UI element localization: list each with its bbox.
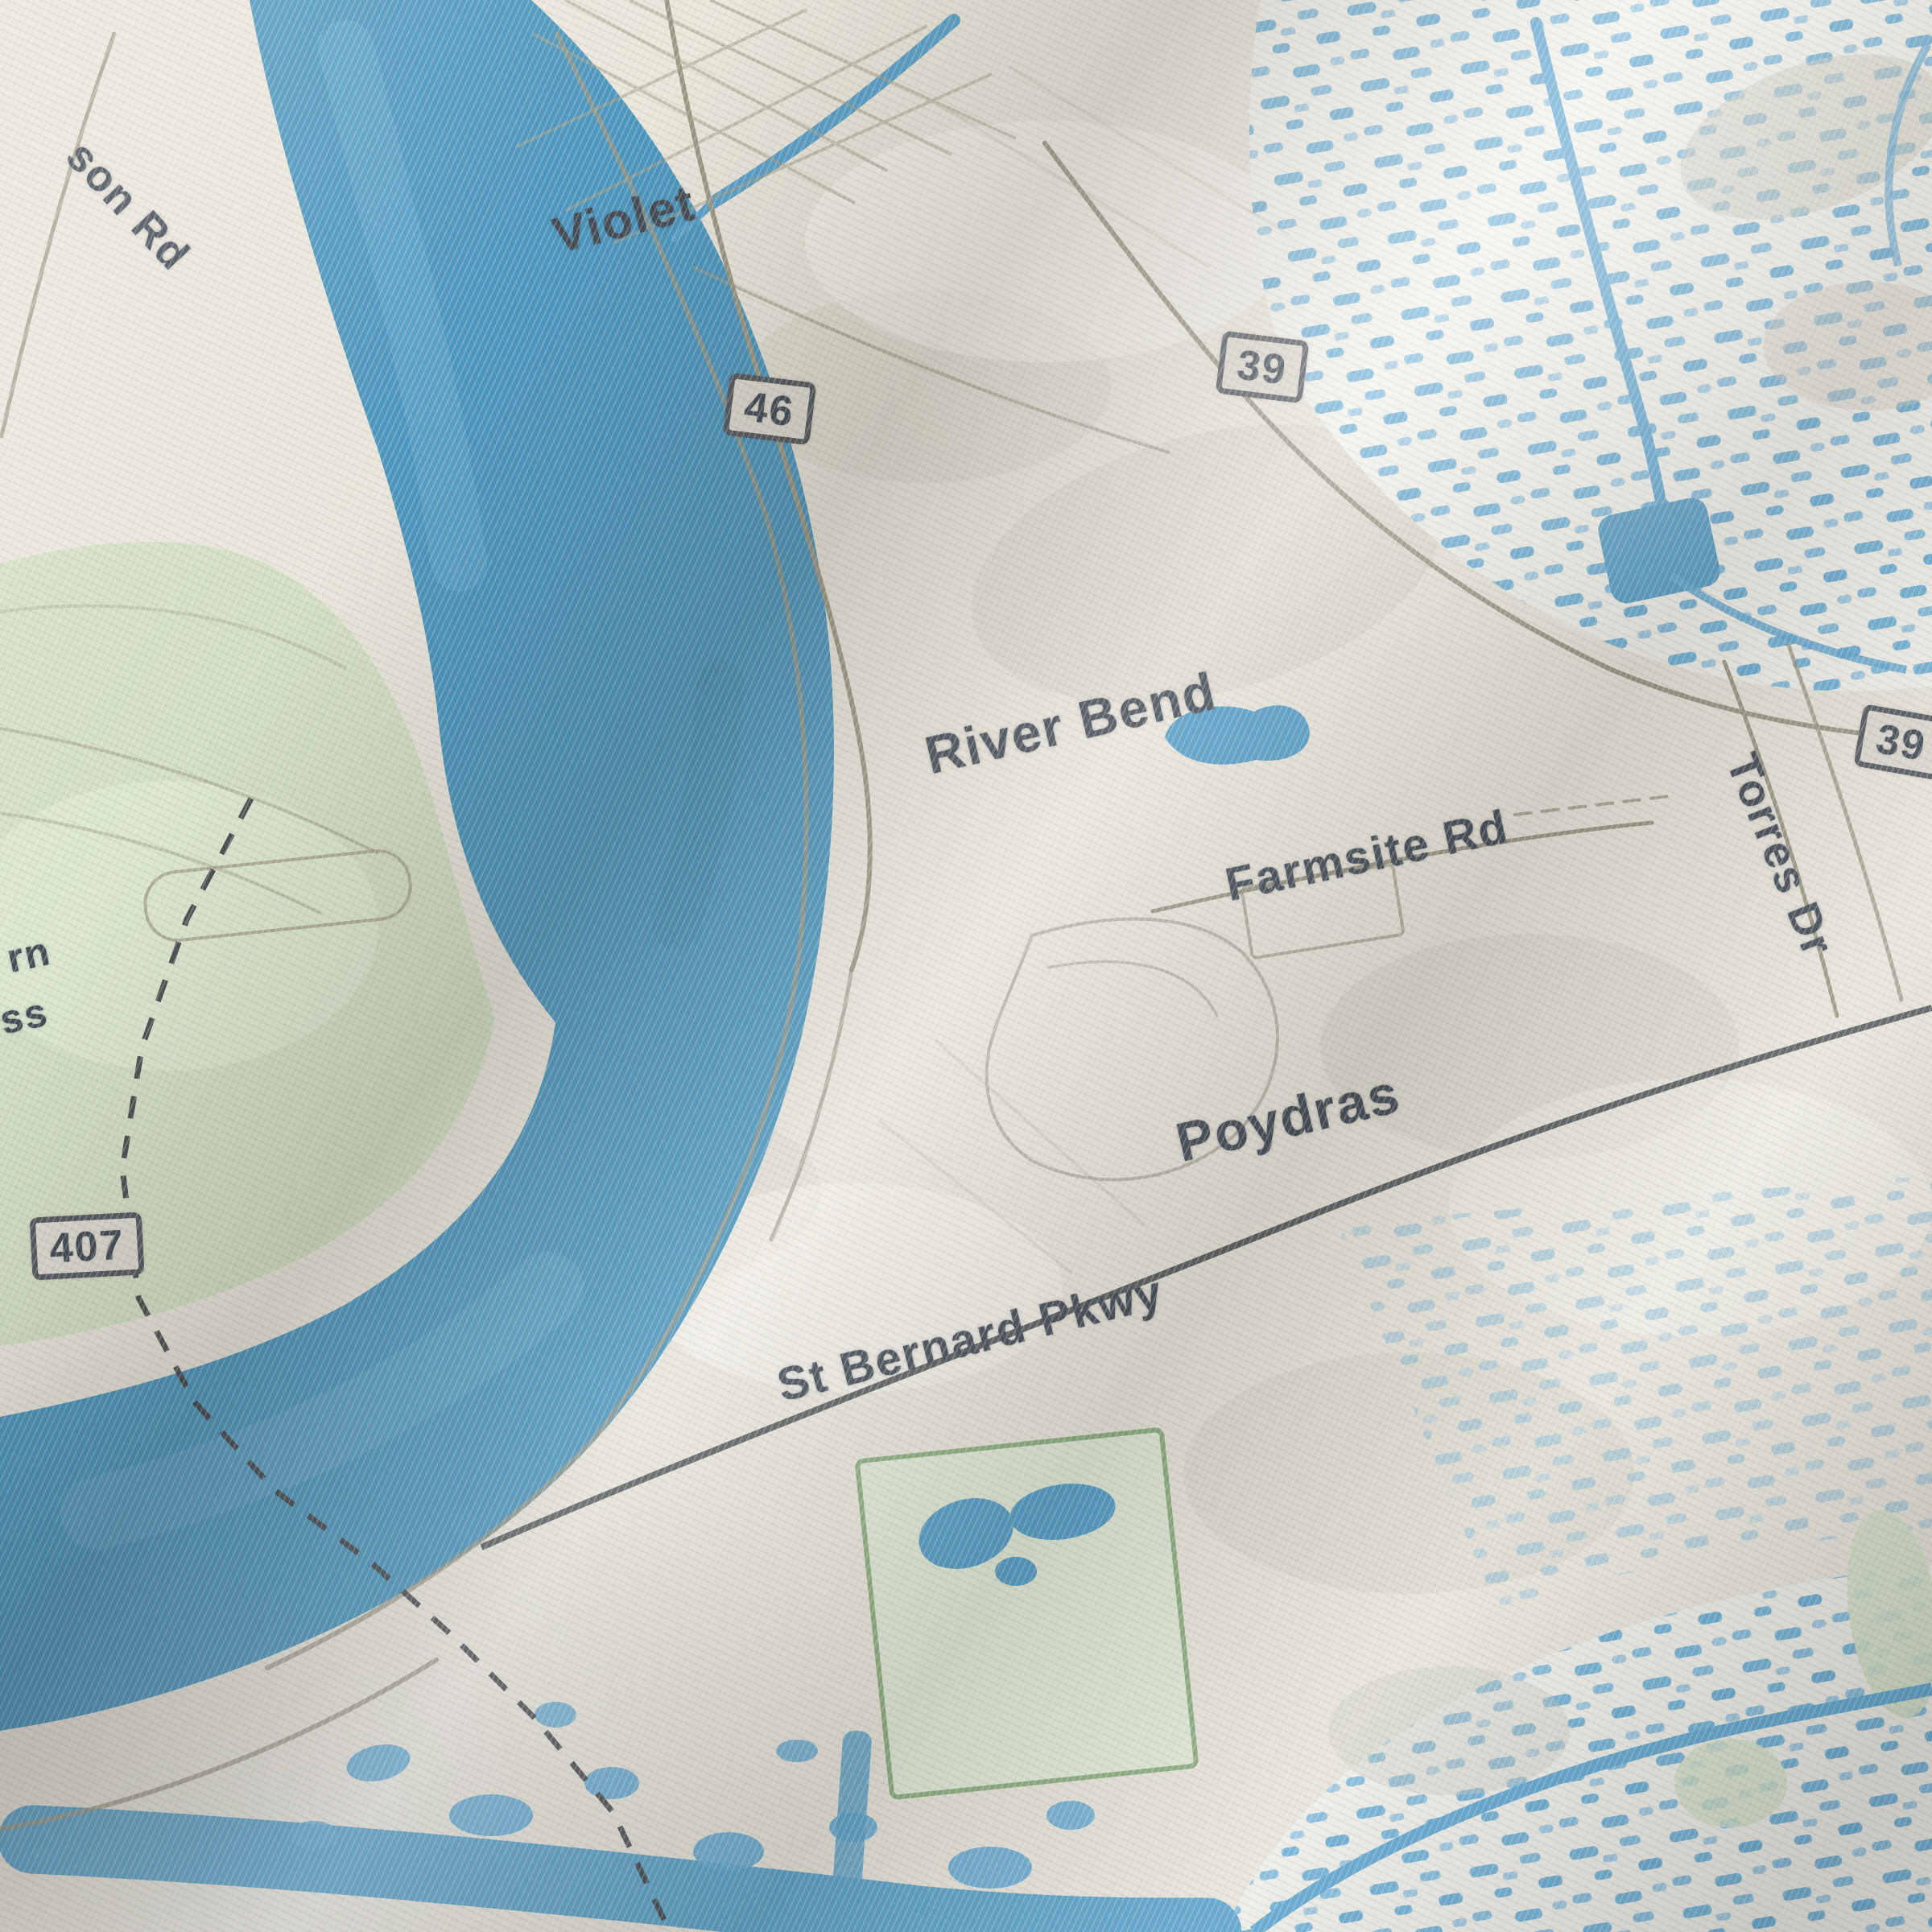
shield-number: 39	[1873, 715, 1930, 770]
road-label-farmsite-rd: Farmsite Rd	[1220, 799, 1513, 911]
label-fragment-rn: rn	[3, 927, 56, 982]
route-shield-407: 407	[30, 1212, 145, 1280]
town-label-violet: Violet	[547, 174, 701, 264]
route-shield-39-top: 39	[1216, 331, 1310, 404]
town-label-poydras: Poydras	[1170, 1061, 1406, 1174]
road-label-st-bernard-pkwy: St Bernard Pkwy	[772, 1264, 1169, 1412]
road-label-son-rd-fragment: son Rd	[57, 131, 200, 280]
shield-number: 407	[48, 1221, 126, 1272]
shield-number: 39	[1235, 341, 1290, 393]
road-label-torres-dr: Torres Dr	[1716, 746, 1845, 964]
map-labels: son Rd Violet River Bend Farmsite Rd Tor…	[0, 0, 1932, 1932]
shield-number: 46	[742, 382, 797, 435]
label-fragment-ss: ss	[0, 988, 52, 1043]
town-label-river-bend: River Bend	[919, 660, 1222, 786]
route-shield-39-right: 39	[1853, 704, 1932, 781]
fabric-map-photo: son Rd Violet River Bend Farmsite Rd Tor…	[0, 0, 1932, 1932]
route-shield-46: 46	[723, 373, 817, 446]
